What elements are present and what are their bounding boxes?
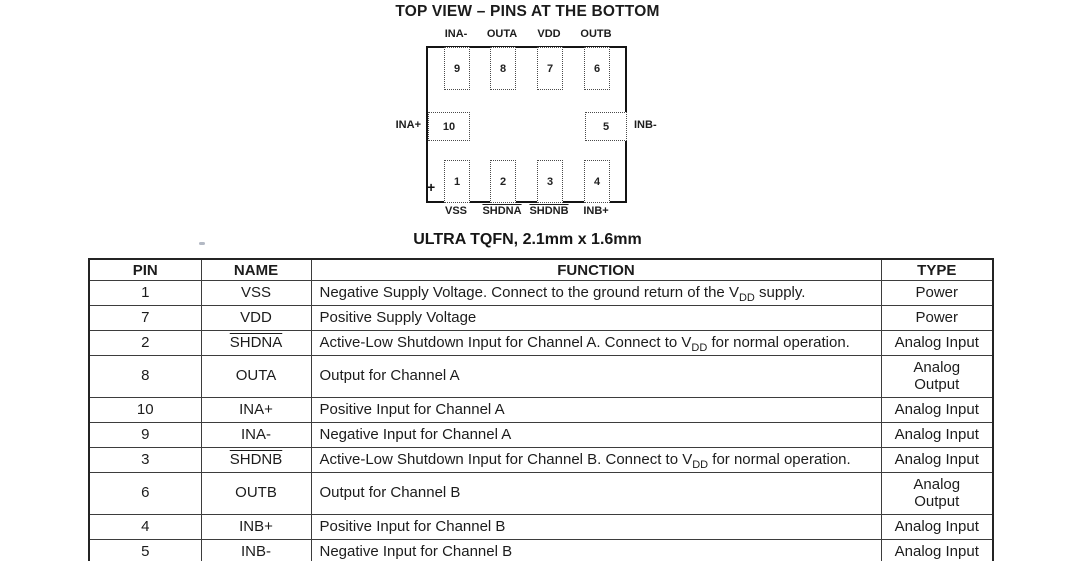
pin-cell: 5	[89, 540, 201, 561]
function-cell: Active-Low Shutdown Input for Channel B.…	[311, 448, 881, 473]
pin-number: 7	[547, 63, 553, 75]
pin-pad-1: 1	[444, 160, 470, 203]
type-cell: Power	[881, 306, 993, 331]
table-row: 4INB+Positive Input for Channel BAnalog …	[89, 515, 993, 540]
table-row: 5INB-Negative Input for Channel BAnalog …	[89, 540, 993, 561]
table-row: 3SHDNBActive-Low Shutdown Input for Chan…	[89, 448, 993, 473]
pin-pad-8: 8	[490, 47, 516, 90]
diagram-title: TOP VIEW – PINS AT THE BOTTOM	[0, 3, 1055, 21]
table-row: 9INA-Negative Input for Channel AAnalog …	[89, 423, 993, 448]
function-cell: Negative Input for Channel A	[311, 423, 881, 448]
pin-description-table: PIN NAME FUNCTION TYPE 1VSSNegative Supp…	[88, 258, 994, 561]
pin-name-label: OUTB	[561, 28, 631, 40]
subscript-text: DD	[691, 342, 707, 354]
polarity-mark: +	[427, 179, 435, 195]
pin-name: VDD	[240, 309, 272, 326]
type-cell: Analog Input	[881, 398, 993, 423]
type-cell: Analog Input	[881, 331, 993, 356]
type-cell: Power	[881, 281, 993, 306]
pin-cell: 9	[89, 423, 201, 448]
name-cell: INB+	[201, 515, 311, 540]
pin-cell: 6	[89, 473, 201, 515]
function-cell: Positive Supply Voltage	[311, 306, 881, 331]
type-cell: AnalogOutput	[881, 356, 993, 398]
name-cell: OUTA	[201, 356, 311, 398]
pin-number: 8	[500, 63, 506, 75]
pin-number: 1	[454, 176, 460, 188]
pin-name-text: INB-	[634, 119, 657, 131]
pin-pad-2: 2	[490, 160, 516, 203]
pin-name: INA-	[241, 426, 271, 443]
pin-name-label: INB+	[561, 205, 631, 217]
subscript-text: DD	[739, 292, 755, 304]
pin-name-text: OUTA	[487, 28, 517, 40]
name-cell: VDD	[201, 306, 311, 331]
pin-name: INA+	[239, 401, 273, 418]
pin-pad-4: 4	[584, 160, 610, 203]
pin-name-label: INA+	[383, 119, 421, 131]
pin-name-text: INA+	[396, 119, 421, 131]
stray-artifact-mark	[199, 242, 205, 245]
type-cell: Analog Input	[881, 515, 993, 540]
header-type: TYPE	[881, 259, 993, 281]
pin-name-text: OUTB	[580, 28, 611, 40]
pin-name: SHDNB	[230, 451, 283, 468]
pin-cell: 3	[89, 448, 201, 473]
pin-pad-10: 10	[428, 112, 470, 141]
header-name: NAME	[201, 259, 311, 281]
pin-number: 10	[443, 121, 455, 133]
type-cell: AnalogOutput	[881, 473, 993, 515]
table-row: 7VDDPositive Supply VoltagePower	[89, 306, 993, 331]
function-cell: Output for Channel A	[311, 356, 881, 398]
name-cell: INB-	[201, 540, 311, 561]
pin-number: 5	[603, 121, 609, 133]
pin-name-label: INB-	[634, 119, 657, 131]
pin-name: SHDNA	[230, 334, 283, 351]
function-cell: Output for Channel B	[311, 473, 881, 515]
function-cell: Negative Supply Voltage. Connect to the …	[311, 281, 881, 306]
pin-name: VSS	[241, 284, 271, 301]
table-row: 2SHDNAActive-Low Shutdown Input for Chan…	[89, 331, 993, 356]
pin-pad-9: 9	[444, 47, 470, 90]
function-cell: Negative Input for Channel B	[311, 540, 881, 561]
pin-pad-7: 7	[537, 47, 563, 90]
pin-name: OUTB	[235, 484, 277, 501]
type-cell: Analog Input	[881, 448, 993, 473]
pin-pad-5: 5	[585, 112, 627, 141]
pin-cell: 10	[89, 398, 201, 423]
pin-name: INB+	[239, 518, 273, 535]
function-cell: Positive Input for Channel A	[311, 398, 881, 423]
package-caption: ULTRA TQFN, 2.1mm x 1.6mm	[0, 231, 1055, 249]
pin-name: OUTA	[236, 367, 277, 384]
table-row: 1VSSNegative Supply Voltage. Connect to …	[89, 281, 993, 306]
name-cell: INA+	[201, 398, 311, 423]
function-cell: Active-Low Shutdown Input for Channel A.…	[311, 331, 881, 356]
header-function: FUNCTION	[311, 259, 881, 281]
pin-cell: 1	[89, 281, 201, 306]
header-pin: PIN	[89, 259, 201, 281]
pin-number: 4	[594, 176, 600, 188]
pin-cell: 8	[89, 356, 201, 398]
name-cell: SHDNB	[201, 448, 311, 473]
name-cell: INA-	[201, 423, 311, 448]
pin-name-text: INB+	[583, 205, 608, 217]
name-cell: OUTB	[201, 473, 311, 515]
pin-pad-6: 6	[584, 47, 610, 90]
pin-name-text: VSS	[445, 205, 467, 217]
pin-number: 6	[594, 63, 600, 75]
type-cell: Analog Input	[881, 540, 993, 561]
pin-cell: 7	[89, 306, 201, 331]
pin-cell: 4	[89, 515, 201, 540]
pin-name-text: VDD	[537, 28, 560, 40]
pin-name: INB-	[241, 543, 271, 560]
pin-number: 3	[547, 176, 553, 188]
pin-cell: 2	[89, 331, 201, 356]
subscript-text: DD	[692, 459, 708, 471]
pin-name-text: INA-	[445, 28, 468, 40]
type-cell: Analog Input	[881, 423, 993, 448]
pin-number: 2	[500, 176, 506, 188]
datasheet-page: TOP VIEW – PINS AT THE BOTTOM 9INA-8OUTA…	[0, 0, 1080, 561]
name-cell: VSS	[201, 281, 311, 306]
pin-number: 9	[454, 63, 460, 75]
name-cell: SHDNA	[201, 331, 311, 356]
function-cell: Positive Input for Channel B	[311, 515, 881, 540]
table-row: 8OUTAOutput for Channel AAnalogOutput	[89, 356, 993, 398]
table-row: 6OUTBOutput for Channel BAnalogOutput	[89, 473, 993, 515]
pin-pad-3: 3	[537, 160, 563, 203]
table-header-row: PIN NAME FUNCTION TYPE	[89, 259, 993, 281]
table-row: 10INA+Positive Input for Channel AAnalog…	[89, 398, 993, 423]
